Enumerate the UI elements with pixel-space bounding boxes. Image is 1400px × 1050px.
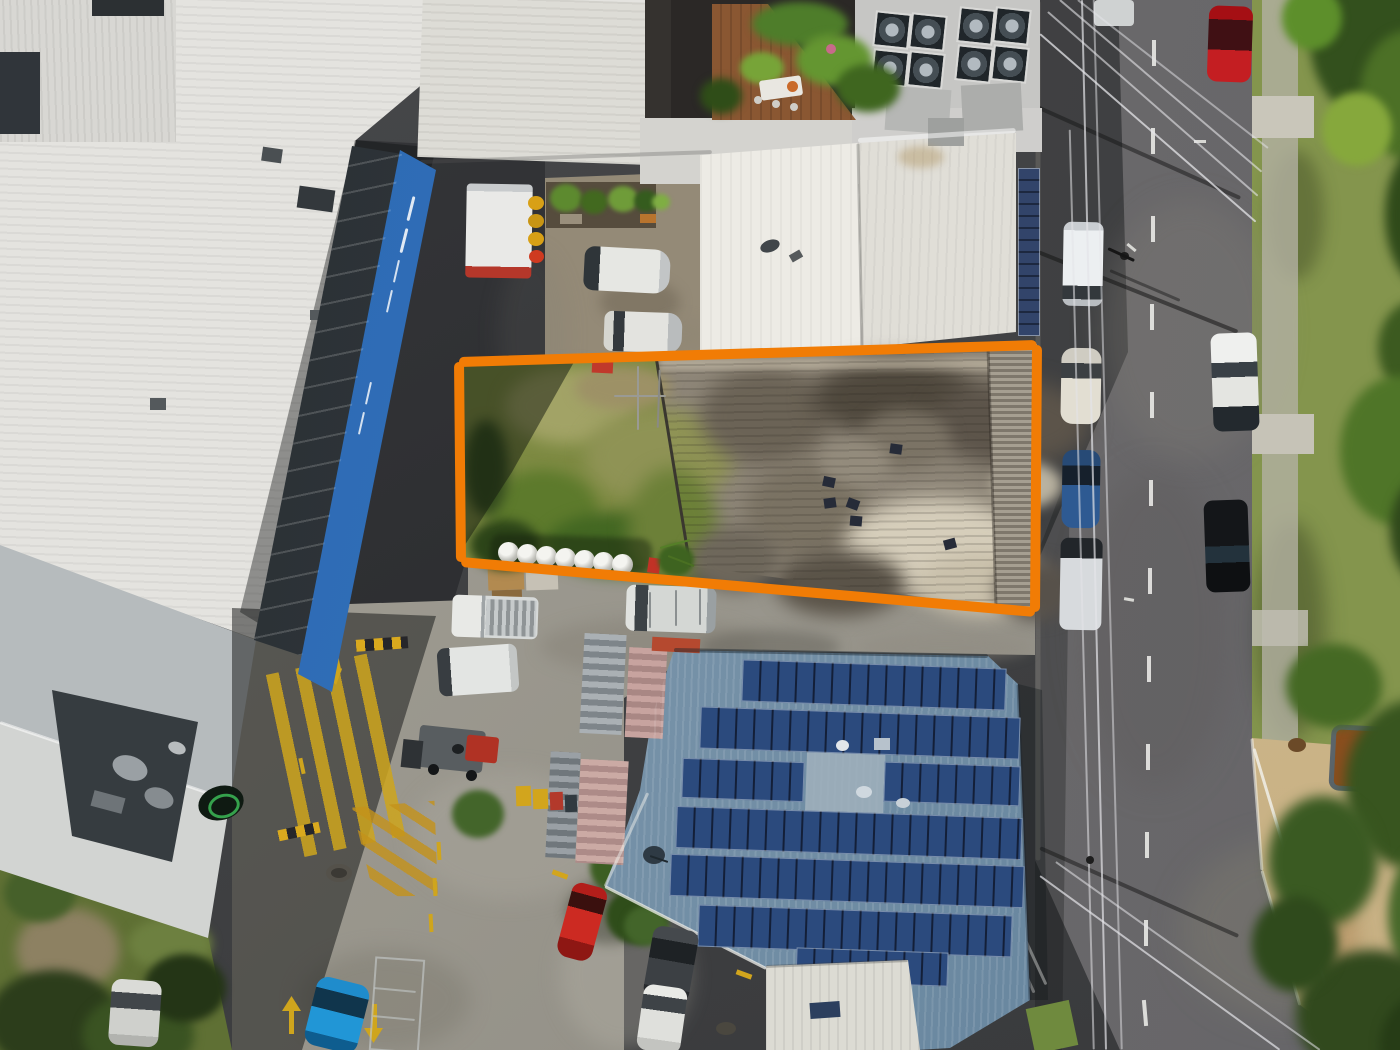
garden-plant [652,194,670,210]
lane-dash [429,914,434,932]
ac-fan-unit [908,12,948,52]
cage-trailer [369,956,425,1050]
forklift-seat [452,744,464,754]
terrace-chair [790,103,798,111]
terrace-chair [772,100,780,108]
roof-rust-stain [898,146,944,168]
manhole-ring [331,868,347,878]
edge-solar-strip [1018,168,1040,336]
lane-dash [437,842,442,860]
forklift-red-unit [465,734,500,763]
vehicle-white-truck-top [1094,0,1134,26]
yellow-bin [533,789,549,810]
vehicle-dark-ute [1203,499,1250,592]
centerline-dash [1148,568,1152,594]
forklift-wheel [428,764,439,775]
satellite-dish [643,846,665,864]
clothes-hoist-pole [637,366,639,430]
garden-plant [580,190,608,214]
garden-item [640,214,656,223]
driveway-apron [1252,610,1308,646]
rust-dot [1288,738,1306,752]
satellite-dish [836,740,849,751]
vehicle-white-car [636,983,689,1050]
vehicle-white-ute [1210,332,1259,432]
roof-vent-cap [856,786,872,798]
ac-fan-unit [956,6,996,46]
roof-vent-unit [822,476,836,488]
vehicle-white-van-3 [436,643,519,696]
roof-vent-unit [823,497,836,509]
driveway-apron [1252,414,1314,454]
lane-arrow-stem [289,1010,294,1034]
property-boundary-edge-2 [1030,345,1042,612]
garden-item [560,214,582,224]
yellow-bin [516,786,532,807]
ac-duct [961,82,1023,133]
terrace-plant [836,64,900,112]
vehicle-box-truck [465,183,533,278]
roof-window-slot [0,52,40,134]
centerline-dash [1151,216,1155,242]
rooftop-unit [261,147,283,164]
tree [1252,896,1338,992]
terrace-west-strip [645,0,671,124]
centerline-dash [1145,832,1149,858]
rooftop-unit [150,398,166,410]
vehicle-canopy-ute [625,584,717,633]
grass-sliver [1026,1000,1079,1050]
manhole [716,1022,736,1035]
terrace-chair [754,96,762,104]
ac-fan-unit [872,10,912,50]
ac-fan-unit [906,50,946,90]
tree [1286,644,1382,728]
centerline-dash [1149,480,1153,506]
terrace-plant [700,78,742,114]
terrace-flower [826,44,836,54]
ac-fan-unit [990,44,1030,84]
yellow-barrel [528,196,544,210]
vehicle-cream-car [1060,348,1101,425]
tree [1322,92,1392,166]
lane-dash [433,878,438,896]
roof-vent-cap [896,798,910,808]
vehicle-white-van [1062,222,1103,307]
roof-rack [675,590,677,626]
truck-slat-canopy [485,599,536,637]
vehicle-white-sedan [603,311,682,354]
yellow-barrel [528,214,544,228]
power-pole [1086,856,1094,864]
roof-rack [699,589,701,625]
vehicle-red-car [1207,5,1254,82]
corrugated-fins [579,633,626,735]
ac-fan-unit [992,6,1032,46]
roof-vent-unit [889,443,902,455]
red-bin [550,792,564,810]
aerial-photo-canvas [0,0,1400,1050]
roof-vent-cap [874,738,890,750]
roof-walkway [805,751,885,816]
vehicle-white-suv [583,246,671,294]
small-solar-table [809,1001,840,1019]
centerline-dash [1150,392,1154,418]
centerline-dash [1152,40,1156,66]
roof-vent-unit [850,515,863,526]
centerline-dash [1150,304,1154,330]
parking-tree [452,790,504,838]
centerline-dash [1147,656,1151,682]
vehicle-silver-car [108,978,162,1047]
centerline-dash [1146,744,1150,770]
garden-plant [550,184,582,212]
forklift-wheel [466,770,477,781]
ac-fan-unit [954,44,994,84]
yellow-barrel [528,232,544,246]
roof-rack [649,592,651,628]
terrace-plate [787,81,798,92]
red-barrel [529,250,544,263]
dark-bin [565,795,578,812]
roof-window-slot [92,0,164,16]
solar-array-row [681,758,804,802]
property-boundary-edge-4 [454,362,466,562]
forklift-mast [401,739,424,769]
driveway-apron [1252,96,1314,138]
